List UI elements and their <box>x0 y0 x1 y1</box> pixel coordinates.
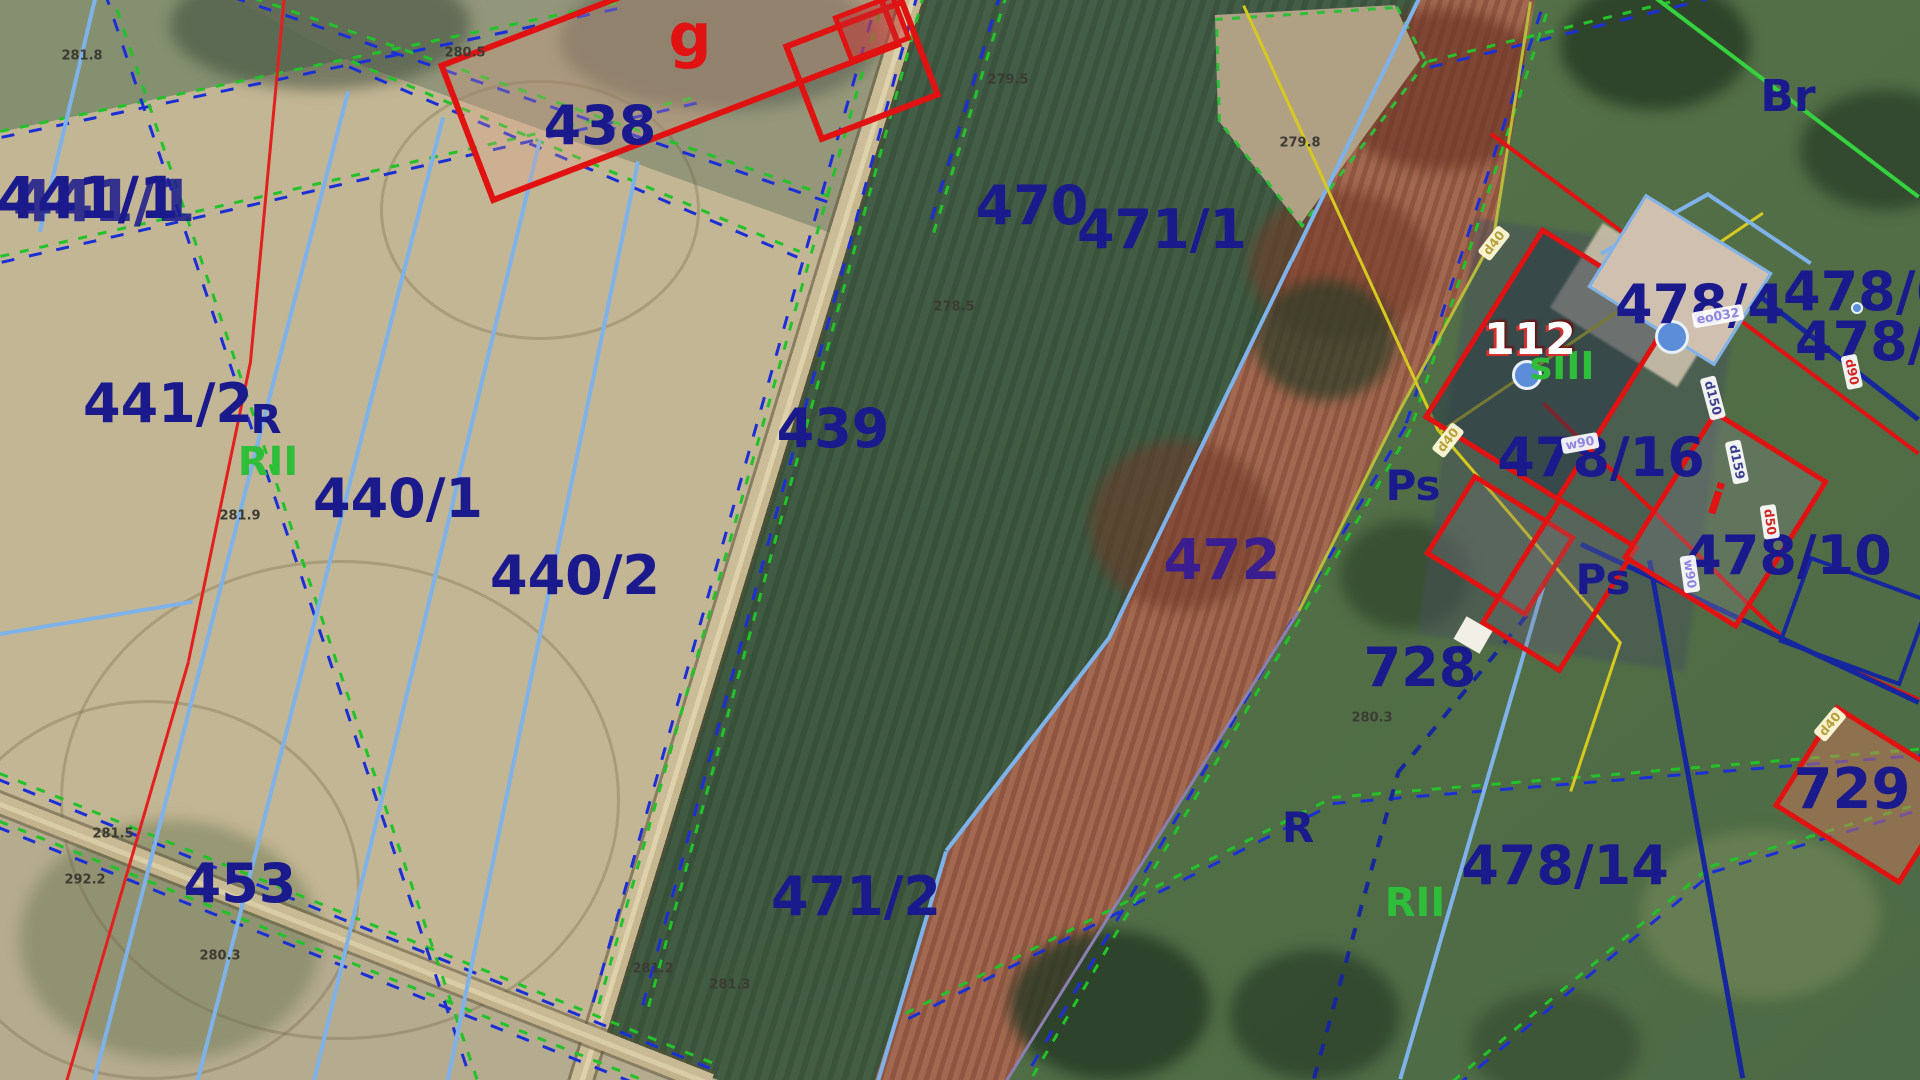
utility-line-badge: d159 <box>1725 439 1749 484</box>
utility-line-badge: d40 <box>1477 225 1511 262</box>
utility-line-badge: d40 <box>1431 422 1465 459</box>
utility-line-badge: w90 <box>1680 555 1701 594</box>
utility-line-badge: d40 <box>1813 706 1847 742</box>
utility-line-badge: d150 <box>1700 375 1726 421</box>
utility-line-badge: d50 <box>1760 504 1780 540</box>
utility-line-badge: w90 <box>1560 432 1599 454</box>
utility-badge-layer: eo032d40d40d150d159d90d50w90w90d40 <box>0 0 1920 1080</box>
map-canvas[interactable]: 441/1438470471/1441/2440/1440/2439472453… <box>0 0 1920 1080</box>
utility-line-badge: eo032 <box>1691 304 1744 328</box>
utility-line-badge: d90 <box>1841 354 1864 391</box>
